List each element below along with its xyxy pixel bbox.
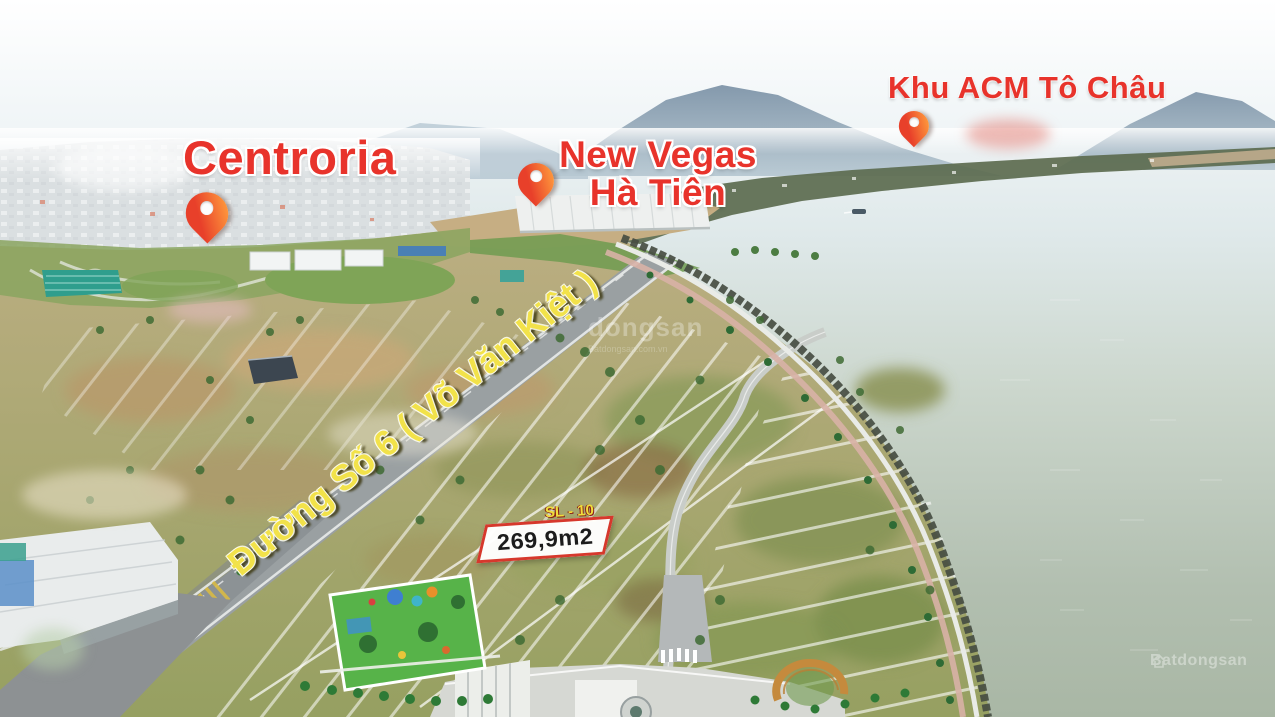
plot-area-value: 269,9m2 [496, 523, 594, 556]
acm-map-pin-icon [899, 111, 929, 152]
new-vegas-line1: New Vegas [538, 136, 778, 174]
khu-acm-to-chau-label: Khu ACM Tô Châu [888, 72, 1166, 104]
aerial-photo-hatien: dongsan Batdongsan.com.vn Batdongsan Cen… [0, 0, 1275, 717]
teal-warehouse [42, 270, 122, 297]
blue-roof-building [398, 246, 446, 256]
centroria-map-pin-icon [186, 192, 228, 250]
blue-tarp [0, 560, 34, 606]
new-vegas-line2: Hà Tiên [538, 174, 778, 212]
pin-hole [909, 117, 919, 127]
scene-canvas [0, 0, 1275, 717]
new-vegas-map-pin-icon [518, 163, 554, 212]
centroria-label: Centroria [183, 134, 396, 182]
pin-hole [530, 170, 542, 182]
new-vegas-label: New Vegas Hà Tiên [538, 136, 778, 211]
